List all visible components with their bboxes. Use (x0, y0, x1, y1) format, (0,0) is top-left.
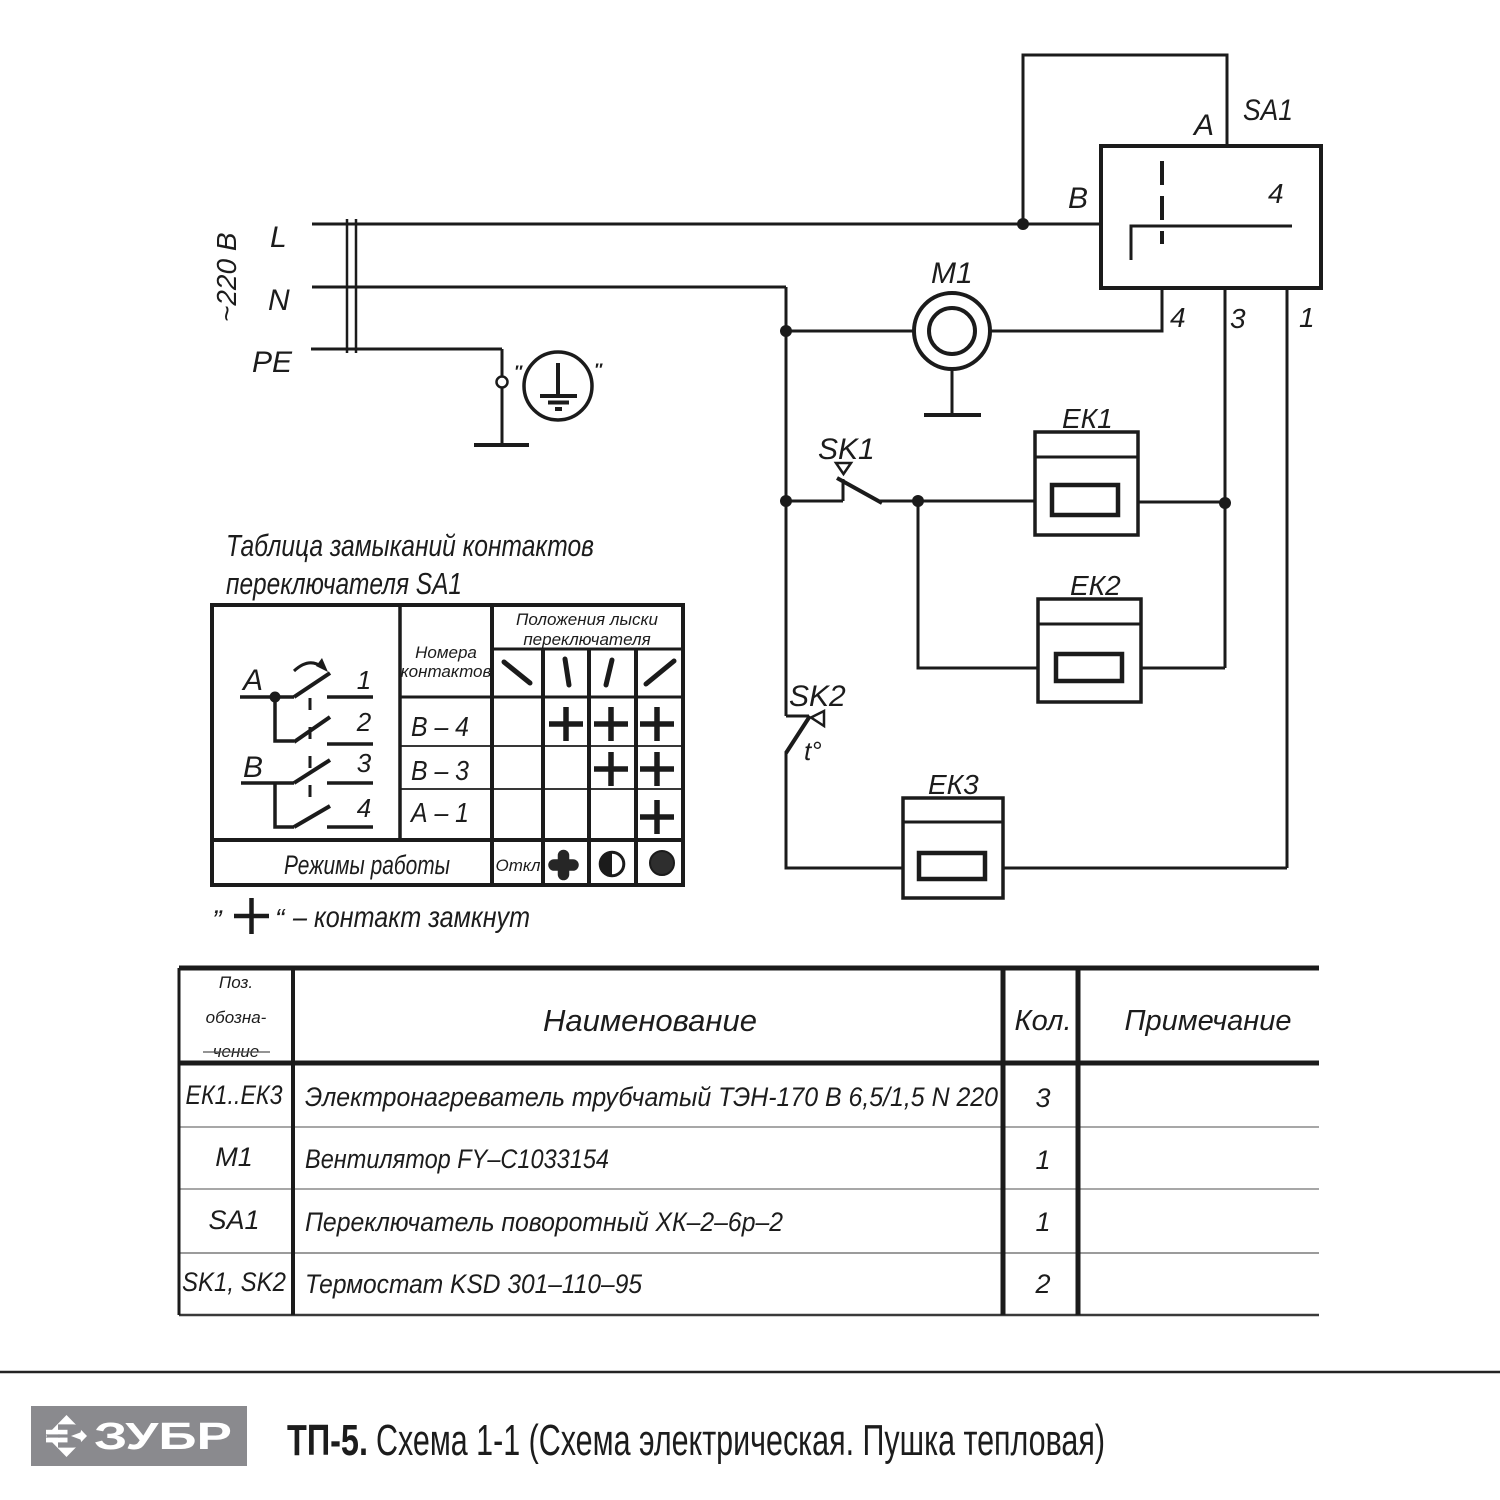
svg-text:В: В (1068, 182, 1088, 215)
svg-text:SK2: SK2 (789, 680, 846, 713)
svg-text:Электронагреватель трубчатый Т: Электронагреватель трубчатый ТЭН-170 В 6… (305, 1082, 998, 1112)
svg-text:Примечание: Примечание (1124, 1005, 1291, 1037)
svg-text:Вентилятор FY–С1033154: Вентилятор FY–С1033154 (305, 1144, 609, 1174)
svg-text:Термостат KSD 301–110–95: Термостат KSD 301–110–95 (305, 1269, 643, 1299)
svg-text:В – 4: В – 4 (411, 711, 469, 742)
svg-text:″: ″ (594, 360, 603, 379)
svg-text:ЗУБР: ЗУБР (94, 1416, 232, 1458)
svg-text:обозна-: обозна- (206, 1008, 267, 1027)
svg-text:Откл: Откл (496, 856, 541, 875)
svg-text:Номера: Номера (415, 643, 477, 662)
svg-text:контактов: контактов (401, 662, 492, 681)
svg-text:2: 2 (1034, 1269, 1050, 1299)
svg-text:ЕК3: ЕК3 (928, 769, 979, 800)
svg-text:– контакт замкнут: – контакт замкнут (292, 901, 530, 934)
svg-text:А – 1: А – 1 (409, 797, 469, 828)
svg-text:ЕК1..ЕК3: ЕК1..ЕК3 (186, 1080, 283, 1110)
svg-text:Схема 1-1 (Схема электрическая: Схема 1-1 (Схема электрическая. Пушка те… (376, 1416, 1105, 1465)
svg-text:SK1: SK1 (818, 433, 875, 466)
svg-text:ТП-5.: ТП-5. (287, 1416, 368, 1465)
svg-text:3: 3 (1035, 1083, 1050, 1113)
svg-text:Таблица замыканий контактов: Таблица замыканий контактов (226, 528, 594, 563)
svg-text:SA1: SA1 (1243, 94, 1293, 127)
svg-text:~220 В: ~220 В (211, 232, 242, 322)
svg-text:Поз.: Поз. (219, 973, 253, 992)
svg-text:1: 1 (1035, 1207, 1050, 1237)
svg-text:Переключатель поворотный ХК–2–: Переключатель поворотный ХК–2–6р–2 (305, 1207, 783, 1237)
svg-text:t°: t° (804, 736, 822, 766)
svg-text:Режимы работы: Режимы работы (284, 850, 450, 880)
svg-text:4: 4 (357, 793, 371, 823)
svg-text:SK1, SK2: SK1, SK2 (182, 1267, 286, 1297)
svg-text:SA1: SA1 (208, 1205, 259, 1235)
svg-text:L: L (270, 221, 287, 254)
svg-text:3: 3 (1230, 303, 1246, 334)
svg-text:М1: М1 (931, 257, 973, 290)
svg-text:А: А (241, 664, 263, 697)
svg-text:переключателя SA1: переключателя SA1 (226, 566, 462, 601)
svg-text:переключателя: переключателя (523, 630, 650, 649)
svg-text:1: 1 (357, 665, 371, 695)
svg-text:Наименование: Наименование (543, 1003, 757, 1038)
svg-text:3: 3 (357, 748, 372, 778)
svg-text:Кол.: Кол. (1015, 1005, 1072, 1037)
svg-text:4: 4 (1268, 178, 1284, 209)
svg-text:В – 3: В – 3 (411, 755, 469, 786)
svg-text:В: В (243, 751, 263, 784)
svg-text:М1: М1 (215, 1142, 253, 1172)
svg-text:″: ″ (514, 362, 523, 381)
svg-text:2: 2 (356, 707, 372, 737)
svg-text:ЕК1: ЕК1 (1062, 403, 1113, 434)
svg-text:Положения лыски: Положения лыски (516, 610, 658, 629)
svg-text:PE: PE (252, 346, 293, 379)
svg-text:„: „ (214, 888, 224, 919)
svg-text:ЕК2: ЕК2 (1070, 570, 1121, 601)
svg-text:N: N (268, 284, 290, 317)
svg-text:4: 4 (1170, 302, 1186, 333)
svg-text:А: А (1192, 109, 1214, 142)
svg-text:1: 1 (1035, 1145, 1050, 1175)
svg-text:1: 1 (1299, 302, 1315, 333)
